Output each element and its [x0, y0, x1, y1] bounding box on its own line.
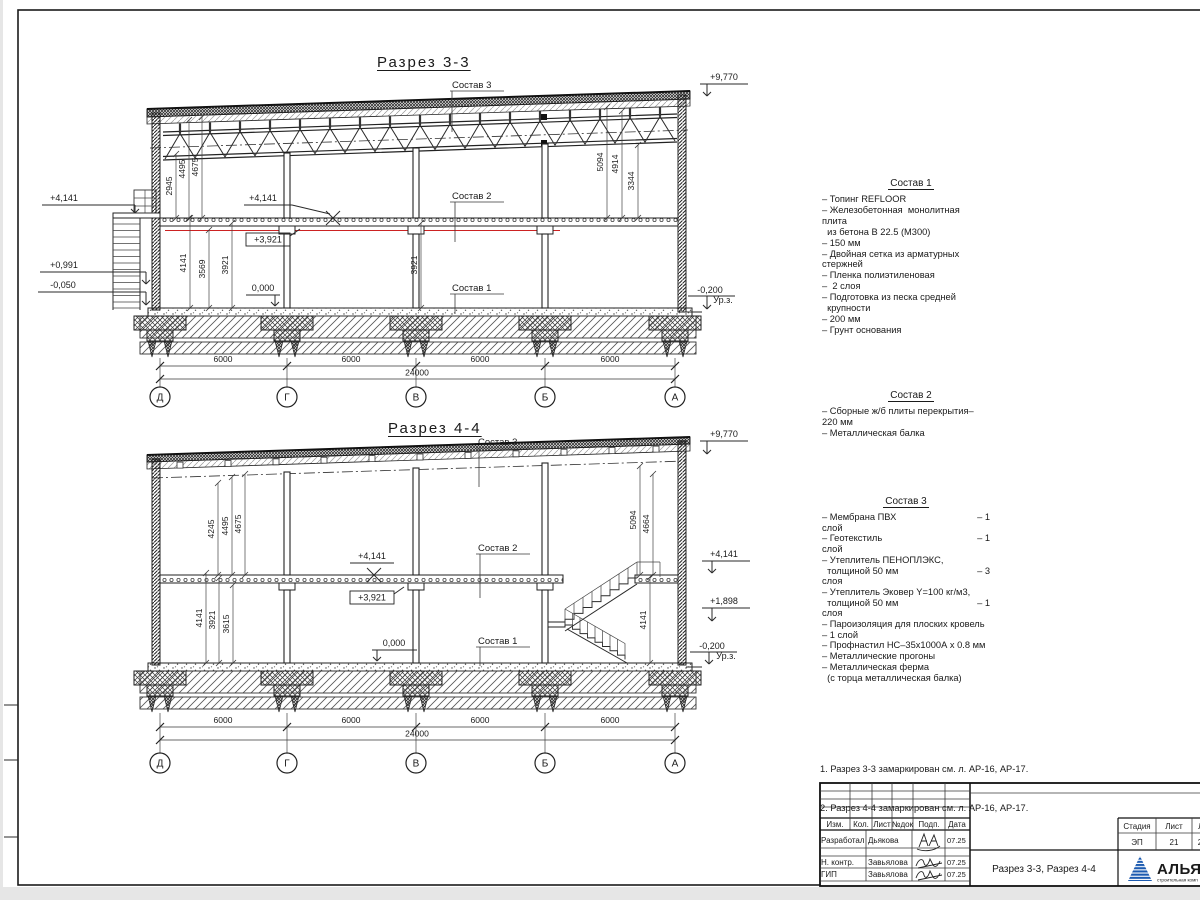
svg-text:В: В: [413, 393, 420, 404]
svg-text:Состав 3: Состав 3: [452, 80, 491, 91]
svg-text:+4,141: +4,141: [249, 193, 277, 203]
svg-text:3344: 3344: [626, 171, 636, 190]
upper-columns: [284, 144, 548, 218]
svg-text:Состав 3: Состав 3: [478, 437, 517, 448]
svg-text:Г: Г: [284, 759, 290, 770]
svg-text:+9,770: +9,770: [710, 429, 738, 439]
svg-text:-0,200: -0,200: [697, 285, 723, 295]
svg-text:+4,141: +4,141: [710, 549, 738, 559]
tb-doc-title: Разрез 3-3, Разрез 4-4: [992, 864, 1096, 875]
spec-line: – Утеплитель Эковер Y=100 кг/м3,: [822, 587, 990, 598]
composition-2-list: – Сборные ж/б плиты перекрытия–220 мм– М…: [822, 406, 1000, 439]
tb-sheet-header: Лист: [1165, 822, 1183, 831]
svg-text:-0,200: -0,200: [699, 641, 725, 651]
svg-text:+3,921: +3,921: [254, 235, 282, 245]
spec-line: – Пароизоляция для плоских кровель: [822, 619, 990, 630]
composition-2-block: Состав 2 – Сборные ж/б плиты перекрытия–…: [822, 390, 1000, 439]
spec-line: – Грунт основания: [822, 325, 1000, 336]
right-wall: [678, 441, 686, 665]
spec-line: слой: [822, 544, 990, 555]
svg-text:6000: 6000: [471, 715, 490, 725]
logo-subtitle: строительная комп: [1157, 878, 1198, 883]
svg-text:4245: 4245: [206, 519, 216, 538]
tb-date-1: 07.25: [947, 836, 966, 845]
spec-line: стержней: [822, 259, 1000, 270]
svg-text:4141: 4141: [178, 253, 188, 272]
svg-text:-0,050: -0,050: [50, 280, 76, 290]
spec-line: – 2 слоя: [822, 281, 1000, 292]
svg-text:4664: 4664: [641, 514, 651, 533]
svg-text:6000: 6000: [214, 715, 233, 725]
tb-sheet-value: 21: [1170, 838, 1179, 847]
spec-line: – Топинг REFLOOR: [822, 194, 1000, 205]
svg-text:В: В: [413, 759, 420, 770]
svg-text:24000: 24000: [405, 368, 429, 378]
svg-text:4675: 4675: [233, 514, 243, 533]
svg-text:+9,770: +9,770: [710, 72, 738, 82]
svg-text:+3,921: +3,921: [358, 593, 386, 603]
composition-3-title: Состав 3: [822, 496, 990, 507]
spec-line: – Геотекстиль– 1: [822, 533, 990, 544]
tb-name-3: Завьялова: [868, 870, 908, 879]
svg-text:Состав 2: Состав 2: [452, 191, 491, 202]
svg-text:А: А: [672, 393, 679, 404]
slab-beams: [279, 583, 553, 590]
svg-text:4914: 4914: [610, 154, 620, 173]
svg-text:0,000: 0,000: [252, 283, 275, 293]
svg-text:6000: 6000: [471, 354, 490, 364]
tb-stage-value: ЭП: [1131, 838, 1143, 847]
svg-text:Г: Г: [284, 393, 290, 404]
axis-bubbles: Д Г В Б А: [150, 387, 685, 407]
spec-line: крупности: [822, 303, 1000, 314]
section-4-4-drawing: 4245 4495 4675 4141 3921 3615 5094 4664 …: [134, 429, 750, 773]
spec-line: – Металлические прогоны: [822, 651, 990, 662]
horizontal-dimensions: 6000 6000 6000 6000 24000: [156, 354, 679, 387]
spec-line: – Металлическая ферма: [822, 662, 990, 673]
composition-labels: Состав 3 Состав 2 Состав 1: [476, 437, 530, 666]
spec-line: – 150 мм: [822, 238, 1000, 249]
ground-floor-slab: [148, 663, 692, 671]
svg-text:Б: Б: [542, 393, 549, 404]
svg-text:Д: Д: [157, 393, 164, 404]
truss-connection-marker: [541, 114, 547, 120]
svg-text:4495: 4495: [220, 516, 230, 535]
vertical-dimensions: 4245 4495 4675 4141 3921 3615 5094 4664 …: [194, 463, 656, 666]
spec-line: толщиной 50 мм– 1: [822, 598, 990, 609]
svg-text:6000: 6000: [342, 354, 361, 364]
ground-layer: [140, 342, 696, 354]
spec-line: – Сборные ж/б плиты перекрытия–: [822, 406, 1000, 417]
composition-1-title: Состав 1: [822, 178, 1000, 189]
svg-text:+0,991: +0,991: [50, 260, 78, 270]
ground-layer: [140, 697, 696, 709]
svg-text:А: А: [672, 759, 679, 770]
tb-name-1: Дьякова: [868, 836, 899, 845]
svg-text:3615: 3615: [221, 614, 231, 633]
svg-text:5094: 5094: [595, 152, 605, 171]
logo-text: АЛЬЯН: [1157, 861, 1200, 878]
sheet-notes: 1. Разрез 3-3 замаркирован см. л. АР-16,…: [820, 737, 1028, 828]
spec-line: – Профнастил НС–35х1000А х 0.8 мм: [822, 640, 990, 651]
svg-text:3569: 3569: [197, 259, 207, 278]
svg-text:4141: 4141: [638, 610, 648, 629]
svg-text:Состав 1: Состав 1: [452, 283, 491, 294]
svg-text:6000: 6000: [601, 354, 620, 364]
spec-line: слой: [822, 523, 990, 534]
spec-line: – 200 мм: [822, 314, 1000, 325]
svg-text:0,000: 0,000: [383, 638, 406, 648]
tb-role-2: Н. контр.: [821, 858, 854, 867]
composition-1-list: – Топинг REFLOOR– Железобетонная монолит…: [822, 194, 1000, 336]
svg-text:3921: 3921: [207, 610, 217, 629]
svg-text:Д: Д: [157, 759, 164, 770]
svg-text:+4,141: +4,141: [50, 193, 78, 203]
spec-line: толщиной 50 мм– 3: [822, 566, 990, 577]
spec-line: (с торца металлическая балка): [822, 673, 990, 684]
right-wall: [678, 95, 686, 312]
spec-line: – 1 слой: [822, 630, 990, 641]
spec-line: – Железобетонная монолитная: [822, 205, 1000, 216]
svg-text:4495: 4495: [177, 159, 187, 178]
spec-line: слоя: [822, 608, 990, 619]
spec-line: из бетона В 22.5 (М300): [822, 227, 1000, 238]
spec-line: – Утеплитель ПЕНОПЛЭКС,: [822, 555, 990, 566]
left-wall: [152, 459, 160, 665]
stair-landing-top: [635, 575, 678, 583]
tb-role-3: ГИП: [821, 870, 837, 879]
spec-line: – Двойная сетка из арматурных: [822, 249, 1000, 260]
svg-text:6000: 6000: [601, 715, 620, 725]
svg-text:6000: 6000: [214, 354, 233, 364]
composition-labels: Состав 3 Состав 2 Состав 1: [450, 80, 504, 314]
svg-text:3921: 3921: [409, 255, 419, 274]
tb-date-2: 07.25: [947, 858, 966, 867]
svg-text:24000: 24000: [405, 729, 429, 739]
axis-bubbles: Д Г В Б А: [150, 753, 685, 773]
svg-text:5094: 5094: [628, 510, 638, 529]
composition-3-block: Состав 3 – Мембрана ПВХ– 1 слой – Геотек…: [822, 496, 990, 683]
svg-text:3921: 3921: [220, 255, 230, 274]
tb-name-2: Завьялова: [868, 858, 908, 867]
note-line-2: 2. Разрез 4-4 замаркирован см. л. АР-16,…: [820, 802, 1028, 815]
lower-columns: [284, 590, 548, 663]
svg-text:6000: 6000: [342, 715, 361, 725]
svg-text:+4,141: +4,141: [358, 551, 386, 561]
composition-1-block: Состав 1 – Топинг REFLOOR– Железобетонна…: [822, 178, 1000, 336]
elevation-marks: +9,770 +4,141 +3,921 0,000 +4,141 +1,898…: [350, 429, 750, 664]
svg-text:Состав 2: Состав 2: [478, 543, 517, 554]
svg-text:4675: 4675: [190, 157, 200, 176]
svg-text:4141: 4141: [194, 608, 204, 627]
spec-line: – Пленка полиэтиленовая: [822, 270, 1000, 281]
horizontal-dimensions: 6000 6000 6000 24000 6000 24000: [156, 713, 679, 753]
spec-line: – Металлическая балка: [822, 428, 1000, 439]
spec-line: 220 мм: [822, 417, 1000, 428]
drawing-viewer: { "page": { "canvas_bg": "#e6e6e6", "she…: [0, 0, 1200, 900]
vertical-dimensions: 2945 4495 4675 4141 3569 3921 3921 5094 …: [164, 104, 641, 311]
svg-text:Состав 1: Состав 1: [478, 636, 517, 647]
tb-stage-header: Стадия: [1123, 822, 1150, 831]
upper-columns: [284, 463, 548, 575]
svg-text:Б: Б: [542, 759, 549, 770]
note-line-1: 1. Разрез 3-3 замаркирован см. л. АР-16,…: [820, 763, 1028, 776]
spec-line: – Мембрана ПВХ– 1: [822, 512, 990, 523]
spec-line: – Подготовка из песка средней: [822, 292, 1000, 303]
spec-line: слоя: [822, 576, 990, 587]
section-3-3-drawing: 2945 4495 4675 4141 3569 3921 3921 5094 …: [38, 72, 748, 407]
composition-2-title: Состав 2: [822, 390, 1000, 401]
svg-text:2945: 2945: [164, 176, 174, 195]
composition-3-list: – Мембрана ПВХ– 1 слой – Геотекстиль– 1 …: [822, 512, 990, 683]
spec-line: плита: [822, 216, 1000, 227]
tb-date-3: 07.25: [947, 870, 966, 879]
tb-role-1: Разработал: [821, 836, 865, 845]
svg-text:+1,898: +1,898: [710, 596, 738, 606]
